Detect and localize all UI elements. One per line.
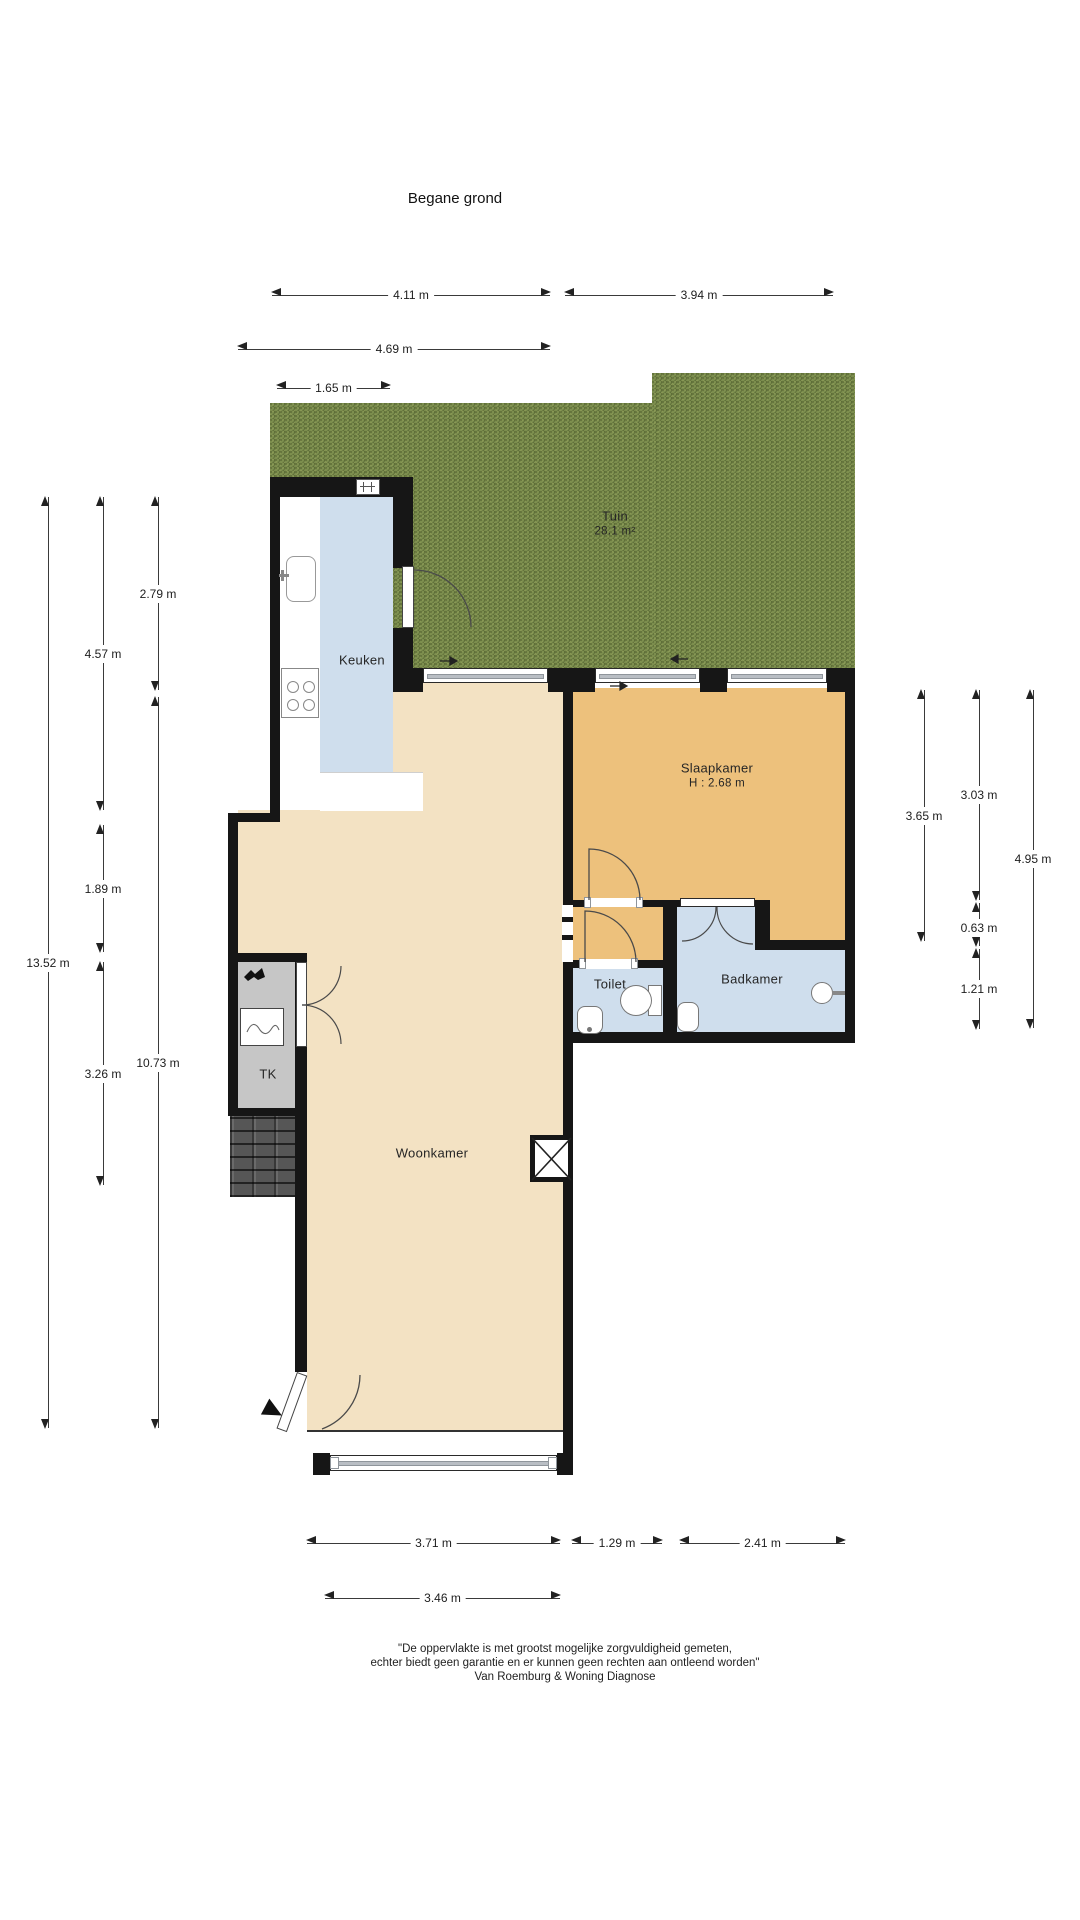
wall (270, 477, 413, 497)
disclaimer-line2: echter biedt geen garantie en er kunnen … (330, 1656, 800, 1670)
door-jamb (579, 958, 586, 969)
wall (393, 668, 423, 692)
window-cap (330, 1457, 339, 1469)
livingroom-floor (238, 810, 423, 953)
dim-bottom-129: 1.29 m (572, 1539, 662, 1548)
wall (557, 1453, 573, 1475)
wall-vent (356, 479, 380, 495)
livingroom-floor (423, 673, 563, 1430)
room-label-tk: TK (259, 1067, 276, 1082)
wall (313, 1453, 330, 1475)
door-jamb (631, 958, 638, 969)
stove-burner (303, 699, 315, 711)
wall-niche-dash (562, 917, 573, 922)
dim-left-457: 4.57 m (99, 497, 108, 810)
livingroom-floor (307, 953, 423, 1430)
exterior-steps (230, 1116, 295, 1197)
closet-fixture (240, 1008, 284, 1046)
double-door-opening (680, 898, 755, 907)
wall (845, 668, 855, 1043)
window (595, 668, 700, 683)
disclaimer-line1: "De oppervlakte is met grootst mogelijke… (330, 1642, 800, 1656)
bedroom-floor (573, 688, 845, 900)
door-opening (582, 959, 638, 969)
floorplan-page: Begane grond (0, 0, 1080, 1920)
wall-niche (562, 905, 573, 962)
window (330, 1455, 557, 1471)
dim-right-495: 4.95 m (1029, 690, 1038, 1028)
dim-right-303: 3.03 m (975, 690, 984, 900)
wall (563, 1032, 855, 1043)
wall (393, 628, 413, 668)
dim-left-279: 2.79 m (154, 497, 163, 690)
room-label-badkamer: Badkamer (721, 972, 783, 987)
dim-left-326: 3.26 m (99, 962, 108, 1185)
kitchen-counter (280, 497, 320, 810)
dim-top-411: 4.11 m (272, 291, 550, 300)
hall-floor (573, 900, 663, 968)
bathroom-basin (811, 982, 833, 1004)
page-title: Begane grond (255, 190, 655, 207)
garden-floor (652, 373, 855, 668)
door-jamb (584, 897, 591, 908)
kitchen-counter (320, 772, 423, 811)
wall (270, 477, 280, 813)
shaft-box (530, 1135, 573, 1182)
dim-left-1073: 10.73 m (154, 697, 163, 1428)
wall-niche-dash (562, 935, 573, 940)
room-label-tuin: Tuin 28.1 m² (594, 509, 635, 538)
dim-top-165: 1.65 m (277, 384, 390, 393)
wall (663, 900, 677, 1032)
kitchen-faucet (281, 570, 284, 581)
wall (700, 668, 727, 692)
dim-top-394: 3.94 m (565, 291, 833, 300)
wall (770, 940, 845, 950)
wall (563, 668, 573, 1475)
wall (638, 960, 665, 968)
closet-doors (296, 962, 307, 1047)
garden-door (402, 566, 414, 628)
dim-bottom-371: 3.71 m (307, 1539, 560, 1548)
dim-left-189: 1.89 m (99, 825, 108, 952)
window (423, 668, 548, 683)
room-height-slaapkamer: H : 2.68 m (681, 778, 753, 790)
door-jamb (636, 897, 643, 908)
floor-edge (307, 1430, 563, 1432)
dim-right-063: 0.63 m (975, 903, 984, 946)
wall (228, 822, 238, 1108)
stove-burner (287, 681, 299, 693)
wall (393, 497, 413, 568)
stove-burner (287, 699, 299, 711)
dim-bottom-241: 2.41 m (680, 1539, 845, 1548)
bathroom-sink (677, 1002, 699, 1032)
door-opening (587, 898, 640, 907)
dim-right-121: 1.21 m (975, 949, 984, 1029)
room-area-tuin: 28.1 m² (594, 526, 635, 538)
dim-bottom-346: 3.46 m (325, 1594, 560, 1603)
toilet-sink-faucet (587, 1027, 592, 1032)
wall (228, 813, 280, 822)
front-door (276, 1372, 307, 1432)
livingroom-floor (393, 692, 423, 772)
dim-right-365: 3.65 m (920, 690, 929, 941)
room-label-keuken: Keuken (339, 653, 385, 668)
room-label-woonkamer: Woonkamer (396, 1146, 469, 1161)
room-label-slaapkamer: Slaapkamer H : 2.68 m (681, 761, 753, 790)
disclaimer-line3: Van Roemburg & Woning Diagnose (330, 1670, 800, 1684)
bathroom-basin-tap (832, 991, 845, 995)
dim-left-1352: 13.52 m (44, 497, 53, 1428)
window-cap (548, 1457, 557, 1469)
window (727, 668, 827, 683)
stove-burner (303, 681, 315, 693)
wall (238, 953, 307, 962)
dim-top-469: 4.69 m (238, 345, 550, 354)
wall (755, 900, 770, 950)
kitchen-sink (286, 556, 316, 602)
bedroom-floor (770, 900, 845, 940)
stove (281, 668, 319, 718)
disclaimer: "De oppervlakte is met grootst mogelijke… (330, 1642, 800, 1684)
room-label-toilet: Toilet (594, 977, 626, 992)
